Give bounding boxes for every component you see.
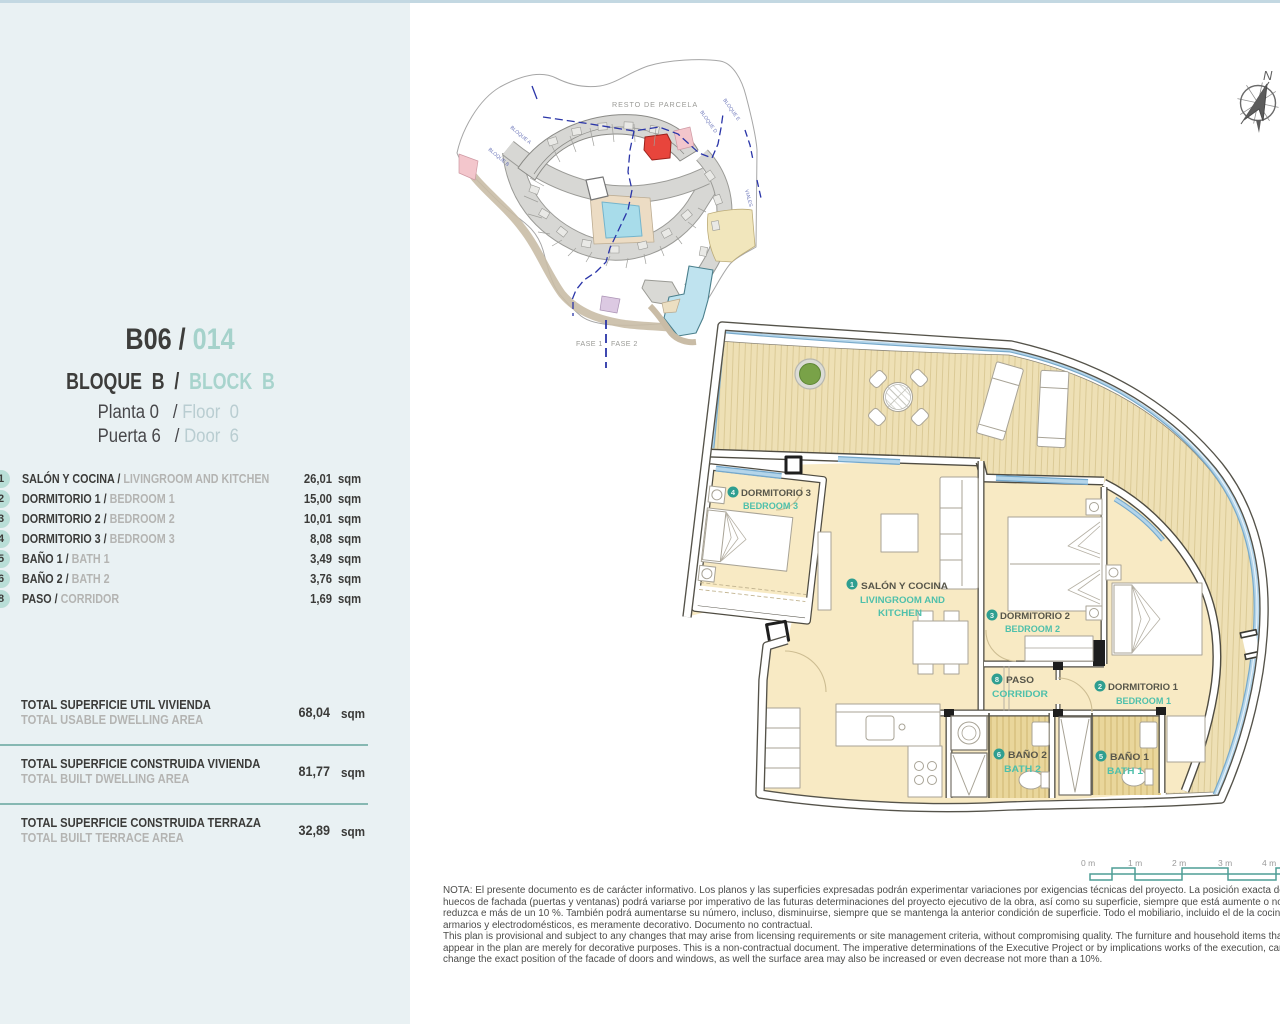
svg-text:3 m: 3 m xyxy=(1218,858,1232,868)
svg-text:3: 3 xyxy=(990,611,994,620)
svg-text:4 m: 4 m xyxy=(1262,858,1276,868)
svg-text:RESTO DE PARCELA: RESTO DE PARCELA xyxy=(612,100,698,109)
svg-text:SALÓN Y COCINA: SALÓN Y COCINA xyxy=(861,580,948,592)
svg-text:N: N xyxy=(1263,68,1273,83)
svg-text:FASE 1: FASE 1 xyxy=(576,339,603,348)
svg-text:BAÑO 2: BAÑO 2 xyxy=(1008,750,1047,761)
svg-text:8: 8 xyxy=(995,675,999,684)
svg-text:BAÑO 1: BAÑO 1 xyxy=(1110,752,1150,763)
svg-text:5: 5 xyxy=(1099,752,1103,761)
svg-text:2: 2 xyxy=(1098,682,1102,691)
svg-text:PASO: PASO xyxy=(1006,675,1034,686)
svg-text:BATH 1: BATH 1 xyxy=(1107,766,1144,777)
svg-text:DORMITORIO 3: DORMITORIO 3 xyxy=(741,488,811,499)
svg-text:DORMITORIO 1: DORMITORIO 1 xyxy=(1108,682,1179,693)
svg-text:BEDROOM 2: BEDROOM 2 xyxy=(1005,624,1060,635)
svg-text:FASE 2: FASE 2 xyxy=(611,339,638,348)
svg-text:0 m: 0 m xyxy=(1081,858,1095,868)
svg-text:KITCHEN: KITCHEN xyxy=(878,608,922,619)
svg-text:BEDROOM 3: BEDROOM 3 xyxy=(743,501,798,512)
svg-text:CORRIDOR: CORRIDOR xyxy=(992,689,1048,700)
svg-text:DORMITORIO 2: DORMITORIO 2 xyxy=(1000,611,1070,622)
svg-text:BEDROOM 1: BEDROOM 1 xyxy=(1116,696,1172,707)
svg-text:2 m: 2 m xyxy=(1172,858,1186,868)
svg-text:6: 6 xyxy=(997,750,1001,759)
svg-text:BATH 2: BATH 2 xyxy=(1004,764,1041,775)
svg-text:LIVINGROOM AND: LIVINGROOM AND xyxy=(860,595,945,606)
svg-text:1 m: 1 m xyxy=(1128,858,1142,868)
svg-text:1: 1 xyxy=(850,580,854,589)
